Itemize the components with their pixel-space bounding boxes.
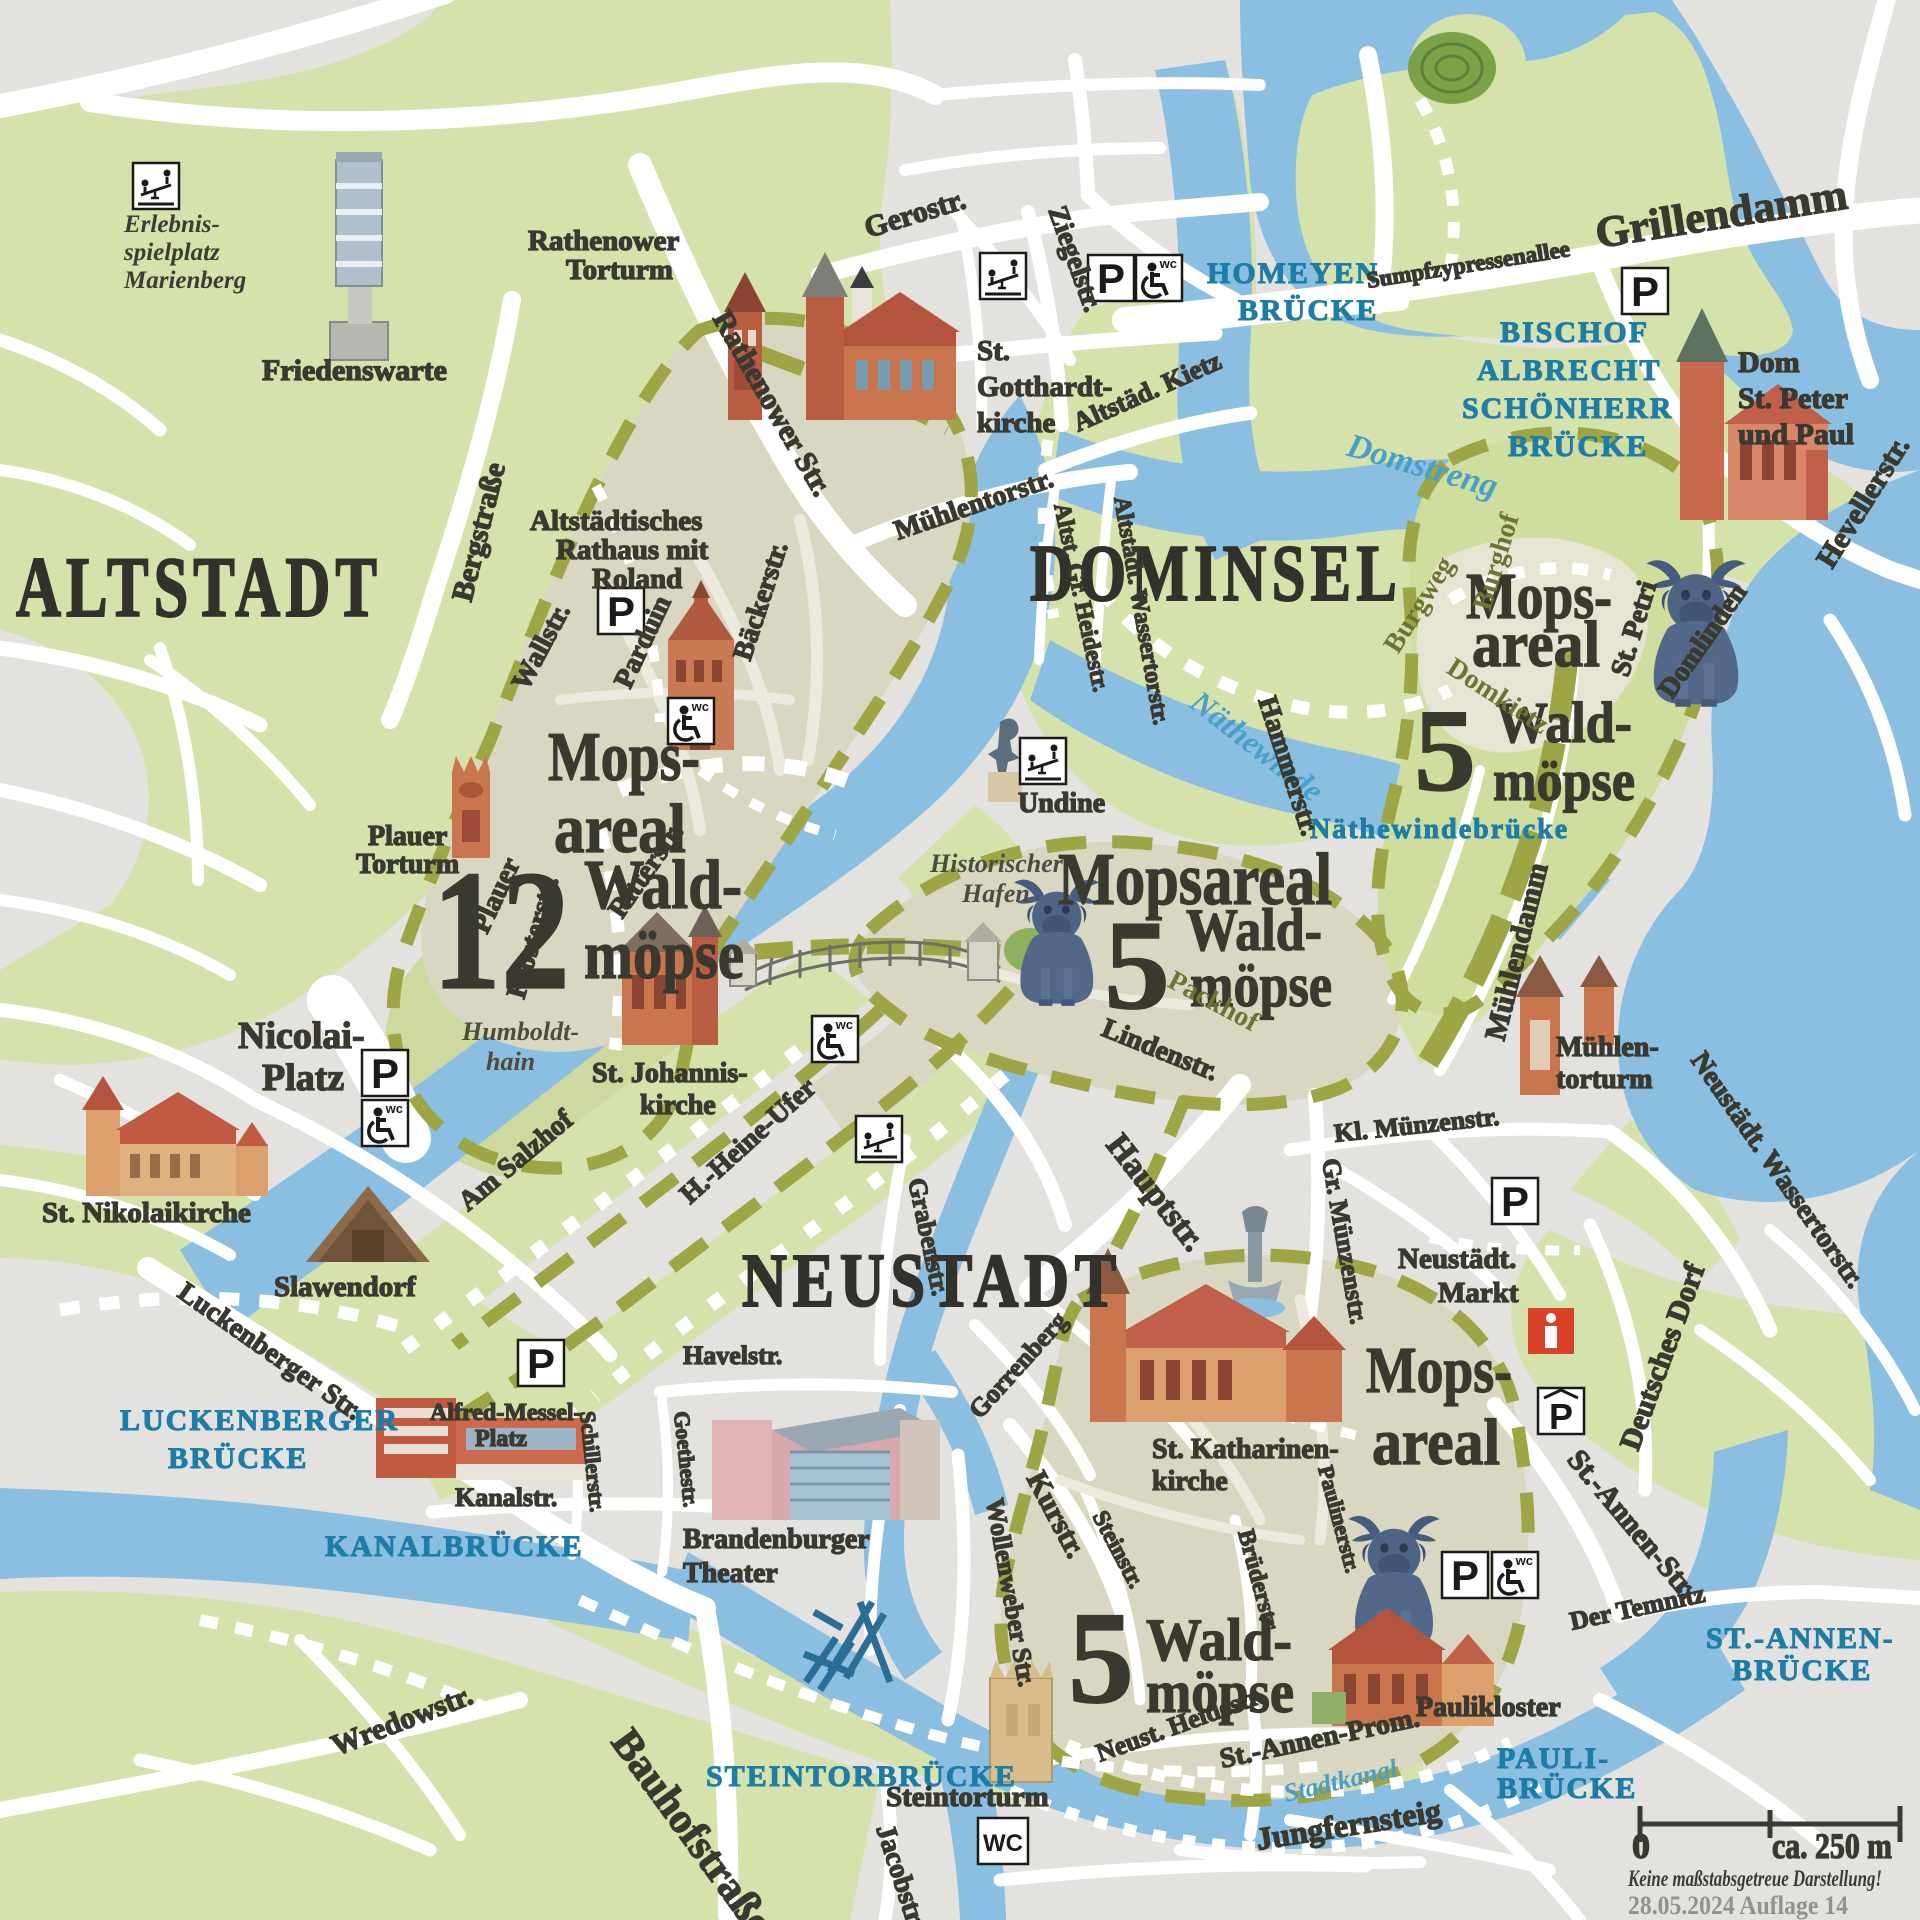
svg-text:Rathaus mit: Rathaus mit	[556, 534, 709, 566]
svg-text:Mühlen-: Mühlen-	[1556, 1032, 1659, 1063]
svg-text:St.: St.	[977, 335, 1010, 367]
svg-text:hain: hain	[486, 1047, 535, 1076]
svg-text:Torturm: Torturm	[356, 849, 459, 880]
svg-text:torturm: torturm	[1556, 1064, 1652, 1095]
svg-text:0: 0	[1632, 1826, 1650, 1866]
svg-text:BRÜCKE: BRÜCKE	[1508, 430, 1648, 463]
svg-text:BRÜCKE: BRÜCKE	[1732, 1654, 1872, 1687]
svg-text:Näthewindebrücke: Näthewindebrücke	[1310, 814, 1569, 845]
svg-text:St. Peter: St. Peter	[1738, 382, 1848, 415]
svg-text:Altstädtisches: Altstädtisches	[530, 505, 702, 537]
svg-text:Brandenburger: Brandenburger	[683, 1524, 870, 1555]
svg-text:Roland: Roland	[592, 563, 682, 595]
svg-text:BRÜCKE: BRÜCKE	[1238, 294, 1378, 327]
svg-text:St. Nikolaikirche: St. Nikolaikirche	[42, 1197, 251, 1229]
svg-text:kirche: kirche	[977, 407, 1056, 439]
svg-text:Paulikloster: Paulikloster	[1416, 1692, 1561, 1723]
svg-text:ALTSTADT: ALTSTADT	[16, 539, 382, 635]
svg-text:und Paul: und Paul	[1738, 418, 1854, 451]
svg-text:BRÜCKE: BRÜCKE	[1497, 1772, 1637, 1805]
svg-text:Erlebnis-: Erlebnis-	[123, 211, 220, 238]
svg-text:5: 5	[1414, 685, 1476, 816]
svg-text:Kanalstr.: Kanalstr.	[455, 1483, 557, 1512]
svg-text:Mops-: Mops-	[1366, 1334, 1512, 1407]
svg-text:Historischer: Historischer	[929, 849, 1064, 878]
svg-text:Dom: Dom	[1738, 346, 1800, 379]
svg-text:ALBRECHT: ALBRECHT	[1477, 354, 1661, 387]
svg-text:möpse: möpse	[1493, 748, 1635, 813]
svg-text:Mops-: Mops-	[548, 719, 700, 796]
svg-text:ST.-ANNEN-: ST.-ANNEN-	[1706, 1622, 1895, 1655]
svg-text:St. Johannis-: St. Johannis-	[592, 1058, 748, 1089]
svg-text:Rathenower: Rathenower	[528, 225, 680, 257]
svg-text:St. Katharinen-: St. Katharinen-	[1152, 1434, 1339, 1465]
svg-text:Markt: Markt	[1438, 1277, 1519, 1309]
svg-text:Plauer: Plauer	[368, 821, 447, 852]
svg-text:möpse: möpse	[584, 917, 744, 994]
svg-text:Neustädt.: Neustädt.	[1398, 1243, 1516, 1275]
svg-text:ca. 250 m: ca. 250 m	[1772, 1826, 1892, 1866]
svg-text:Platz: Platz	[475, 1426, 527, 1452]
svg-text:areal: areal	[1472, 608, 1600, 681]
svg-text:spielplatz: spielplatz	[123, 239, 220, 266]
svg-text:WC: WC	[983, 1830, 1023, 1857]
svg-text:PAULI-: PAULI-	[1497, 1742, 1610, 1775]
svg-text:28.05.2024 Auflage 14: 28.05.2024 Auflage 14	[1628, 1891, 1848, 1920]
svg-text:Humboldt-: Humboldt-	[461, 1017, 579, 1046]
svg-text:Havelstr.: Havelstr.	[683, 1341, 782, 1370]
svg-text:Steintorturm: Steintorturm	[886, 1781, 1049, 1813]
svg-text:Nicolai-: Nicolai-	[238, 1015, 365, 1057]
svg-text:Friedenswarte: Friedenswarte	[262, 354, 447, 387]
svg-text:Alfred-Messel-: Alfred-Messel-	[430, 1400, 582, 1426]
svg-text:Hafen: Hafen	[961, 879, 1030, 908]
svg-text:Undine: Undine	[1018, 788, 1105, 819]
svg-text:kirche: kirche	[640, 1090, 716, 1121]
svg-text:P: P	[1549, 1396, 1573, 1437]
svg-text:HOMEYEN-: HOMEYEN-	[1207, 257, 1391, 290]
svg-text:Platz: Platz	[262, 1057, 344, 1099]
svg-text:Theater: Theater	[683, 1558, 778, 1589]
svg-text:BISCHOF: BISCHOF	[1500, 316, 1649, 349]
svg-text:Keine maßstabsgetreue Darstell: Keine maßstabsgetreue Darstellung!	[1627, 1866, 1882, 1891]
svg-text:Slawendorf: Slawendorf	[274, 1271, 416, 1303]
svg-text:5: 5	[1068, 1584, 1134, 1731]
svg-text:Gotthardt-: Gotthardt-	[977, 371, 1112, 403]
svg-text:SCHÖNHERR: SCHÖNHERR	[1462, 392, 1673, 425]
svg-text:Torturm: Torturm	[566, 254, 673, 286]
svg-text:BRÜCKE: BRÜCKE	[168, 1442, 308, 1475]
svg-text:areal: areal	[1372, 1406, 1500, 1479]
svg-text:kirche: kirche	[1152, 1466, 1228, 1497]
svg-text:Marienberg: Marienberg	[123, 267, 246, 294]
svg-text:KANALBRÜCKE: KANALBRÜCKE	[325, 1530, 584, 1563]
